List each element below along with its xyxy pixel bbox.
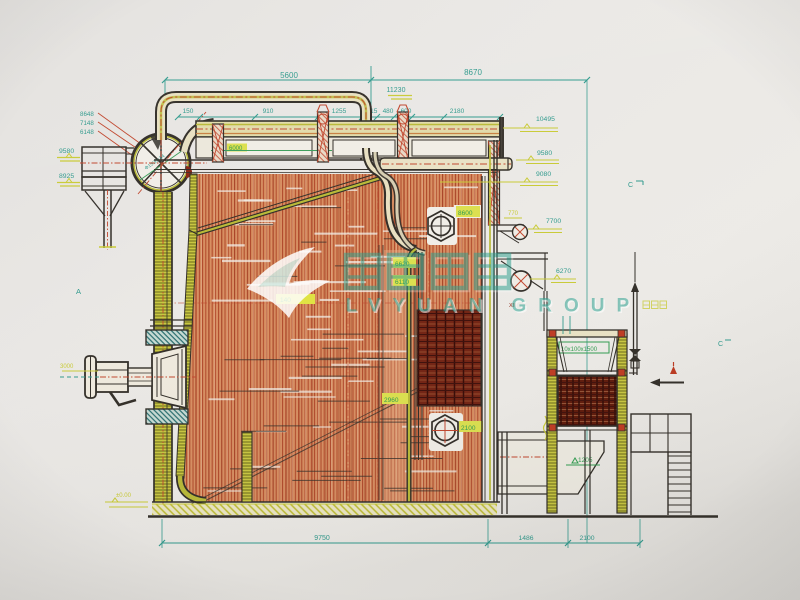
- svg-text:LVYUAN GROUP: LVYUAN GROUP: [346, 296, 642, 317]
